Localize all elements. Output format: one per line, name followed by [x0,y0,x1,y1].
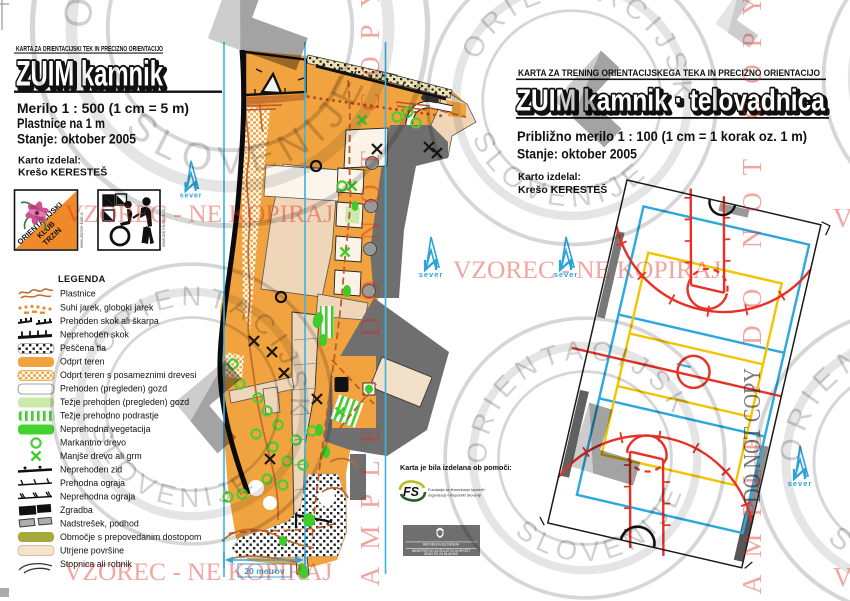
svg-text:Karta je bila izdelana ob pomo: Karta je bila izdelana ob pomoči: [400,463,512,472]
svg-text:Območje s prepovedanim dostopo: Območje s prepovedanim dostopom [60,532,201,542]
svg-text:Odprt teren: Odprt teren [60,357,105,367]
svg-text:FS: FS [403,485,420,499]
svg-text:Zgradba: Zgradba [60,505,93,515]
svg-text:REPUBLIKA SLOVENIJA: REPUBLIKA SLOVENIJA [423,543,460,547]
svg-text:VZ: VZ [833,562,850,592]
svg-text:VZOREC - NE KOPIRAJ: VZOREC - NE KOPIRAJ [453,255,722,284]
svg-text:Težje prehodno podrastje: Težje prehodno podrastje [60,411,159,421]
svg-text:URAD RS ZA MLADINO: URAD RS ZA MLADINO [424,552,459,556]
svg-text:Karto izdelal:: Karto izdelal: [18,156,81,167]
svg-text:Stanje: oktober 2005: Stanje: oktober 2005 [517,146,637,162]
svg-text:VZOREC - NE KOPIRAJ: VZOREC - NE KOPIRAJ [64,557,333,586]
svg-text:DO NOT COPY: DO NOT COPY [740,368,766,503]
svg-text:Plastnice: Plastnice [60,289,96,299]
svg-text:VZ: VZ [833,203,850,233]
svg-text:Prehoden (pregleden) gozd: Prehoden (pregleden) gozd [60,384,167,394]
svg-text:KARTA ZA ORIENTACIJSKI TEK IN: KARTA ZA ORIENTACIJSKI TEK IN PRECIZNO O… [16,44,163,53]
svg-text:Utrjene površine: Utrjene površine [60,546,124,556]
svg-text:VZOREC - NE KOPIRAJ: VZOREC - NE KOPIRAJ [65,199,334,228]
svg-text:organizacij v Republiki Sloven: organizacij v Republiki Sloveniji [428,494,481,498]
svg-text:LEGENDA: LEGENDA [58,274,106,284]
